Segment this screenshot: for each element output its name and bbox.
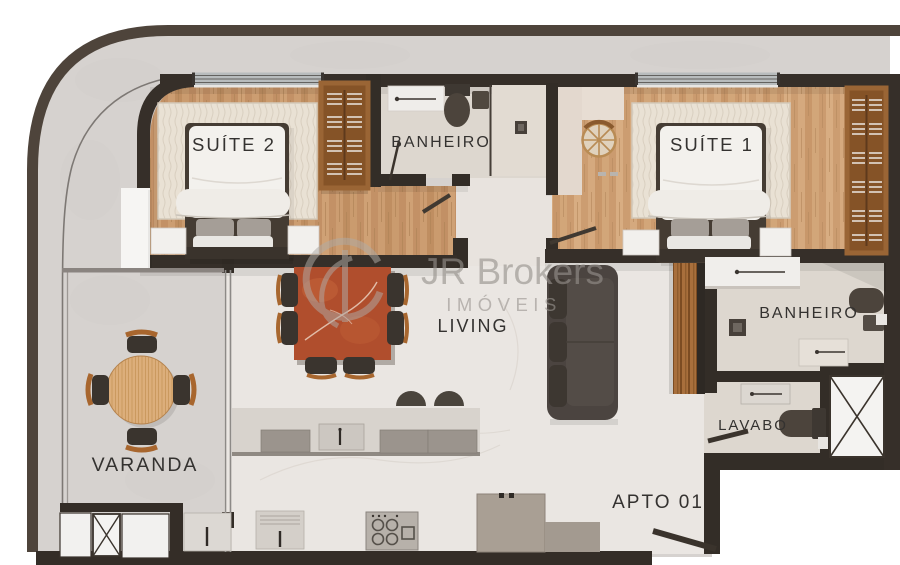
- svg-text:BANHEIRO: BANHEIRO: [391, 134, 491, 151]
- svg-text:SUÍTE 1: SUÍTE 1: [670, 134, 754, 155]
- svg-text:IMÓVEIS: IMÓVEIS: [446, 294, 562, 315]
- svg-text:BANHEIRO: BANHEIRO: [759, 305, 859, 322]
- svg-text:LAVABO: LAVABO: [718, 417, 788, 434]
- svg-text:LIVING: LIVING: [437, 316, 508, 336]
- svg-text:JR Brokers: JR Brokers: [421, 251, 604, 292]
- svg-text:VARANDA: VARANDA: [92, 454, 199, 476]
- svg-text:APTO 01: APTO 01: [612, 492, 704, 513]
- svg-text:SUÍTE 2: SUÍTE 2: [192, 134, 276, 155]
